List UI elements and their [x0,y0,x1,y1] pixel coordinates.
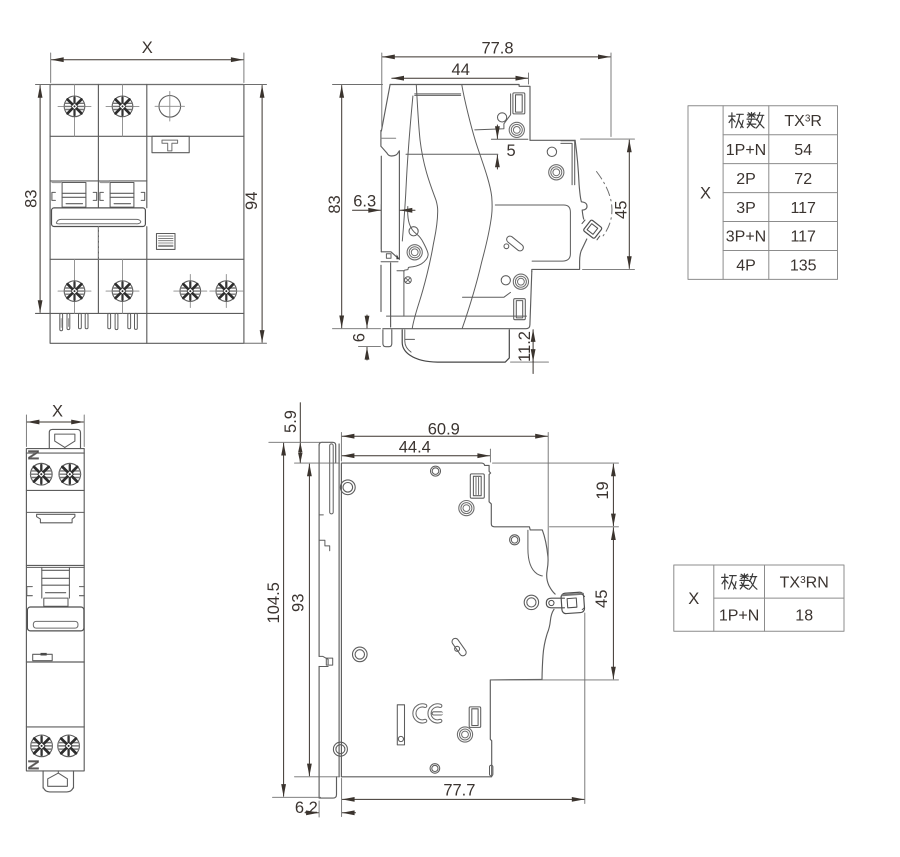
svg-text:45: 45 [593,590,611,608]
svg-text:X: X [52,402,63,420]
svg-text:117: 117 [790,200,816,217]
svg-text:TX3R: TX3R [784,113,822,130]
svg-text:83: 83 [23,190,41,208]
svg-text:X: X [700,184,711,202]
svg-text:45: 45 [613,201,631,219]
svg-text:6.2: 6.2 [295,799,318,817]
svg-text:6.3: 6.3 [353,193,376,211]
svg-text:93: 93 [289,594,307,612]
svg-text:18: 18 [795,607,813,624]
svg-text:TX3RN: TX3RN [780,574,829,591]
svg-text:60.9: 60.9 [428,421,460,439]
svg-text:19: 19 [594,481,612,499]
svg-text:4P: 4P [736,258,756,275]
svg-text:44: 44 [452,61,470,79]
svg-text:3P: 3P [736,200,756,217]
svg-text:5.9: 5.9 [282,410,300,433]
svg-text:X: X [142,39,153,57]
svg-text:83: 83 [326,195,344,213]
svg-text:11.2: 11.2 [516,331,534,362]
svg-text:2P: 2P [736,171,756,188]
svg-text:1P+N: 1P+N [726,142,766,159]
svg-text:135: 135 [790,258,817,275]
svg-text:104.5: 104.5 [265,582,283,623]
svg-text:N: N [25,449,42,460]
svg-text:117: 117 [790,229,816,246]
svg-text:5: 5 [507,142,516,160]
svg-text:72: 72 [794,171,812,188]
svg-text:77.7: 77.7 [443,782,475,800]
svg-text:1P+N: 1P+N [719,607,759,624]
svg-text:94: 94 [243,192,261,210]
svg-text:77.8: 77.8 [481,39,513,57]
svg-text:6: 6 [351,333,369,342]
svg-text:N: N [26,759,43,770]
svg-text:3P+N: 3P+N [726,229,766,246]
svg-text:44.4: 44.4 [399,438,431,456]
svg-text:54: 54 [794,142,812,159]
svg-text:X: X [688,590,699,608]
